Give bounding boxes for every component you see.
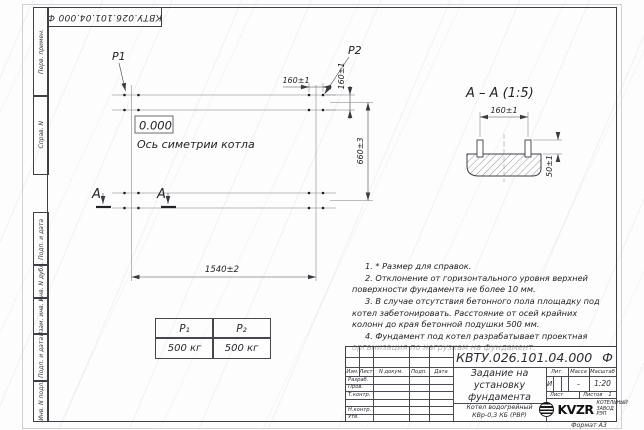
section-cut-marks: A A	[91, 187, 176, 207]
anchor-bolt-left	[477, 140, 483, 157]
company-logo: KVZR КОТЕЛЬНЫЙ ЗАВОД РЭП	[546, 398, 616, 421]
product-name: Котел водогрейный КВр-0,3 КБ (РВР)	[453, 404, 546, 420]
mass-label: Масса	[568, 367, 589, 376]
dim-660-text: 660±3	[356, 137, 365, 164]
scale-value: 1:20	[589, 376, 616, 391]
lit-value: И	[546, 376, 553, 391]
anchor-bolts-plan	[123, 94, 324, 210]
designation-cell: КВТУ.026.101.04.000 Ф	[453, 347, 616, 367]
company-name: КОТЕЛЬНЫЙ ЗАВОД РЭП	[597, 401, 623, 419]
row-nkontr: Н.контр.	[346, 406, 375, 414]
dim-1540-text: 1540±2	[205, 265, 239, 275]
load-table-value-p2: 500 кг	[212, 337, 271, 359]
row-prov: Пров.	[346, 384, 375, 392]
p2-label: P2	[348, 44, 362, 57]
title-block: Изм. Лист N докум. Подп. Дата Разраб. Пр…	[345, 346, 617, 422]
section-dim-160-text: 160±1	[490, 106, 517, 115]
row-tkontr: Т.контр.	[346, 391, 375, 399]
symmetry-axis-label: Ось симетрии котла	[137, 138, 255, 151]
dim-width-660: 660±3	[330, 103, 373, 201]
level-mark-text: 0.000	[139, 119, 172, 133]
dim-bolt-spacing-horizontal: 160±1	[282, 76, 332, 92]
drawing-sheet: КВТУ.026.101.04.000 Ф Перв. примен. Спра…	[0, 0, 644, 430]
col-data: Дата	[429, 367, 453, 376]
plan-axis-lines	[112, 85, 336, 281]
section-dim-50-text: 50±1	[545, 155, 554, 177]
load-table-header-p1: P₁	[155, 318, 214, 339]
section-view-title: А – А (1:5)	[465, 86, 534, 101]
note-3: 3. В случае отсутствия бетонного пола пл…	[352, 296, 608, 331]
load-point-leaders: P1 P2	[112, 44, 362, 94]
format-label: Формат А3	[560, 422, 618, 429]
scale-label: Масштаб	[589, 367, 616, 376]
col-list: Лист	[359, 367, 373, 376]
mass-value: –	[568, 376, 589, 391]
sheet-label: Лист	[548, 391, 581, 398]
col-ndokum: N докум.	[373, 367, 409, 376]
document-title: Задание на установку фундамента	[453, 368, 546, 402]
row-razrab: Разраб.	[346, 376, 375, 384]
sheets-value: 1	[604, 391, 616, 398]
load-table-header-p2: P₂	[212, 318, 271, 339]
section-view-aa: А – А (1:5) 160±1 50±1	[465, 86, 562, 182]
technical-notes: 1. * Размер для справок. 2. Отклонение о…	[352, 261, 608, 354]
section-letter-left: A	[91, 187, 101, 202]
load-table-value-p1: 500 кг	[155, 337, 214, 359]
row-empty	[346, 399, 375, 407]
col-izm: Изм.	[346, 367, 359, 376]
dim-160-top-text: 160±1	[282, 76, 309, 85]
kvzr-logo-text: KVZR	[557, 402, 593, 417]
dim-length-1540: 1540±2	[132, 265, 317, 277]
col-podp: Подп.	[409, 367, 429, 376]
kvzr-emblem-icon	[539, 402, 554, 417]
row-utv: Утв.	[346, 414, 375, 422]
dim-160-side-text: 160±1	[337, 62, 346, 89]
note-1: 1. * Размер для справок.	[352, 261, 608, 273]
anchor-bolt-right	[525, 140, 531, 157]
lit-label: Лит.	[546, 367, 568, 376]
level-mark: 0.000	[135, 116, 173, 133]
p1-label: P1	[112, 50, 126, 63]
load-table: P₁ P₂ 500 кг 500 кг	[155, 318, 270, 358]
section-letter-right: A	[156, 187, 166, 202]
note-2: 2. Отклонение от горизонтального уровня …	[352, 273, 608, 296]
dim-bolt-spacing-vertical: 160±1	[326, 62, 355, 119]
